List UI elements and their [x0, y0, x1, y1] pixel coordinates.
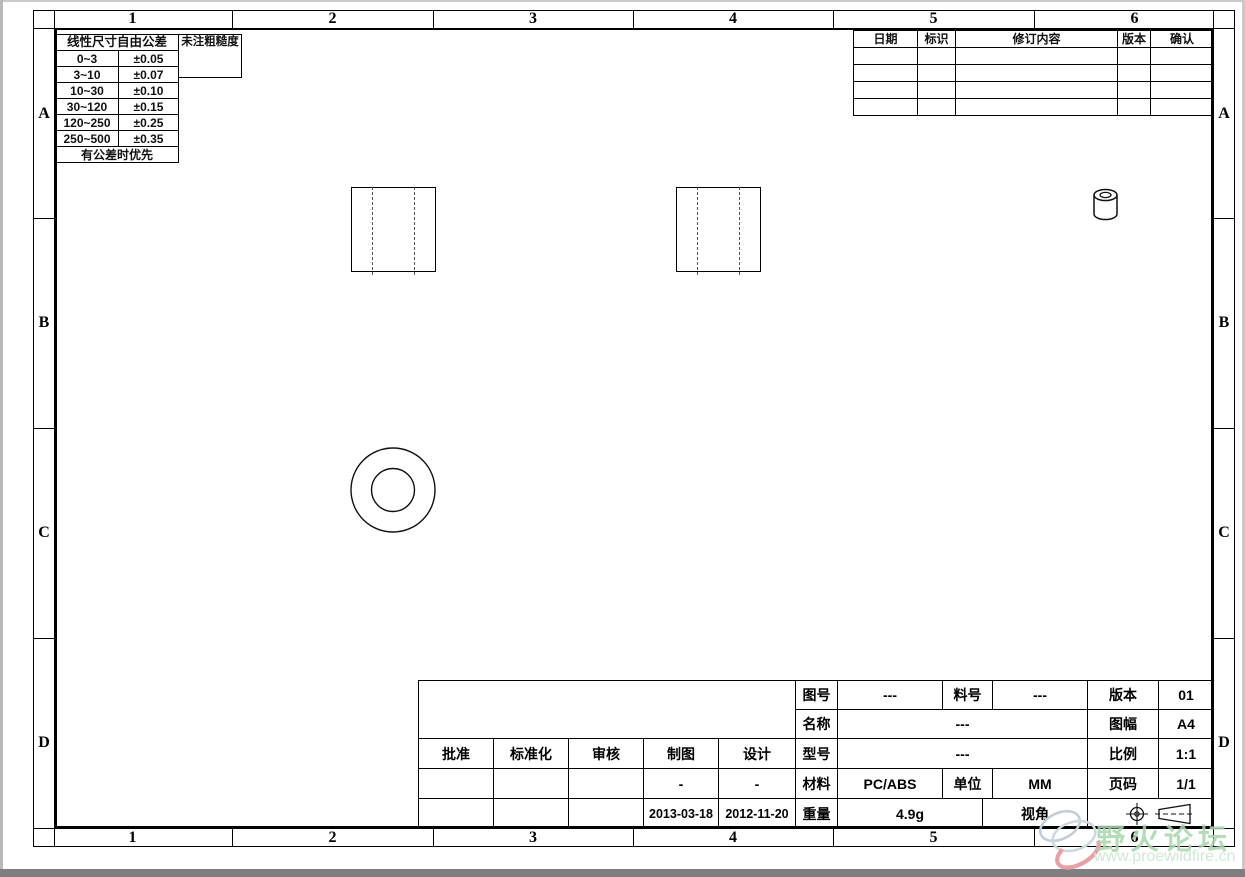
- material-value: PC/ABS: [838, 769, 943, 799]
- scale-label: 比例: [1088, 739, 1159, 769]
- tolerance-range: 250~500: [56, 131, 119, 147]
- roughness-box: 未注粗糙度: [178, 34, 242, 78]
- weight-value: 4.9g: [838, 799, 983, 829]
- approve-sign-cell: [419, 769, 494, 799]
- zone-col-label: 2: [232, 829, 433, 847]
- zone-col-label: 1: [33, 10, 232, 28]
- hidden-line: [739, 187, 740, 275]
- zone-col-label: 3: [433, 829, 633, 847]
- watermark-url: www.proewildfire.cn: [1094, 848, 1235, 866]
- zone-col-label: 3: [433, 10, 633, 28]
- review-sign-cell: [569, 769, 644, 799]
- standardize-label: 标准化: [494, 739, 569, 769]
- tolerance-range: 30~120: [56, 99, 119, 115]
- name-value: ---: [838, 710, 1088, 739]
- tolerance-range: 10~30: [56, 83, 119, 99]
- zone-row-label: A: [1213, 10, 1235, 218]
- front-view-circles: [350, 447, 436, 533]
- iso-view-cylinder: [1088, 185, 1124, 225]
- unit-value: MM: [993, 769, 1088, 799]
- tolerance-value: ±0.05: [119, 51, 179, 67]
- version-value: 01: [1159, 681, 1214, 710]
- cad-drawing-screenshot: 1 2 3 4 5 6 1 2 3 4 5 6 A B C D A B C D …: [0, 0, 1245, 877]
- approve-label: 批准: [419, 739, 494, 769]
- roughness-title: 未注粗糙度: [181, 36, 239, 48]
- zone-row-label: D: [33, 638, 55, 847]
- tolerance-value: ±0.07: [119, 67, 179, 83]
- zone-col-label: 4: [633, 829, 833, 847]
- version-label: 版本: [1088, 681, 1159, 710]
- zone-col-label: 5: [833, 10, 1034, 28]
- zone-col-label: 6: [1034, 10, 1235, 28]
- part-no-value: ---: [993, 681, 1088, 710]
- name-label: 名称: [796, 710, 838, 739]
- tolerance-value: ±0.25: [119, 115, 179, 131]
- zone-row-label: A: [33, 10, 55, 218]
- drawing-no-label: 图号: [796, 681, 838, 710]
- tolerance-table-footer: 有公差时优先: [56, 147, 179, 163]
- zone-row-label: B: [1213, 218, 1235, 428]
- revision-header-content: 修订内容: [956, 31, 1118, 48]
- design-label: 设计: [719, 739, 796, 769]
- zone-col-label: 5: [833, 829, 1034, 847]
- revision-header-mark: 标识: [918, 31, 956, 48]
- page-value: 1/1: [1159, 769, 1214, 799]
- side-view-right: [676, 187, 761, 272]
- zone-col-label: 2: [232, 10, 433, 28]
- window-top-edge: [0, 0, 1245, 2]
- zone-col-label: 4: [633, 10, 833, 28]
- revision-empty-row: [854, 82, 1214, 99]
- side-view-left: [351, 187, 436, 272]
- hidden-line: [372, 187, 373, 275]
- window-left-edge: [0, 0, 3, 877]
- review-date-cell: [569, 799, 644, 829]
- draft-date: 2013-03-18: [644, 799, 719, 829]
- tolerance-value: ±0.35: [119, 131, 179, 147]
- material-label: 材料: [796, 769, 838, 799]
- tolerance-range: 0~3: [56, 51, 119, 67]
- tolerance-table-title: 线性尺寸自由公差: [56, 35, 179, 51]
- draft-label: 制图: [644, 739, 719, 769]
- tolerance-range: 3~10: [56, 67, 119, 83]
- review-label: 审核: [569, 739, 644, 769]
- standardize-sign-cell: [494, 769, 569, 799]
- part-no-label: 料号: [943, 681, 993, 710]
- model-label: 型号: [796, 739, 838, 769]
- revision-table: 日期 标识 修订内容 版本 确认: [853, 30, 1214, 116]
- unit-label: 单位: [943, 769, 993, 799]
- approve-date-cell: [419, 799, 494, 829]
- design-date: 2012-11-20: [719, 799, 796, 829]
- sheet-value: A4: [1159, 710, 1214, 739]
- revision-empty-row: [854, 48, 1214, 65]
- hidden-line: [697, 187, 698, 275]
- draft-sign-cell: -: [644, 769, 719, 799]
- revision-header-confirm: 确认: [1151, 31, 1214, 48]
- hidden-line: [414, 187, 415, 275]
- zone-row-label: C: [33, 428, 55, 638]
- title-block-blank-cell: [419, 681, 796, 739]
- zone-col-label: 1: [33, 829, 232, 847]
- tolerance-value: ±0.15: [119, 99, 179, 115]
- sheet-label: 图幅: [1088, 710, 1159, 739]
- tolerance-value: ±0.10: [119, 83, 179, 99]
- revision-header-version: 版本: [1118, 31, 1151, 48]
- model-value: ---: [838, 739, 1088, 769]
- design-sign-cell: -: [719, 769, 796, 799]
- revision-empty-row: [854, 99, 1214, 116]
- page-label: 页码: [1088, 769, 1159, 799]
- revision-empty-row: [854, 65, 1214, 82]
- standardize-date-cell: [494, 799, 569, 829]
- tolerance-range: 120~250: [56, 115, 119, 131]
- tolerance-table: 线性尺寸自由公差 0~3±0.05 3~10±0.07 10~30±0.10 3…: [55, 34, 179, 163]
- scale-value: 1:1: [1159, 739, 1214, 769]
- zone-row-label: C: [1213, 428, 1235, 638]
- drawing-no-value: ---: [838, 681, 943, 710]
- weight-label: 重量: [796, 799, 838, 829]
- revision-header-date: 日期: [854, 31, 918, 48]
- zone-row-label: B: [33, 218, 55, 428]
